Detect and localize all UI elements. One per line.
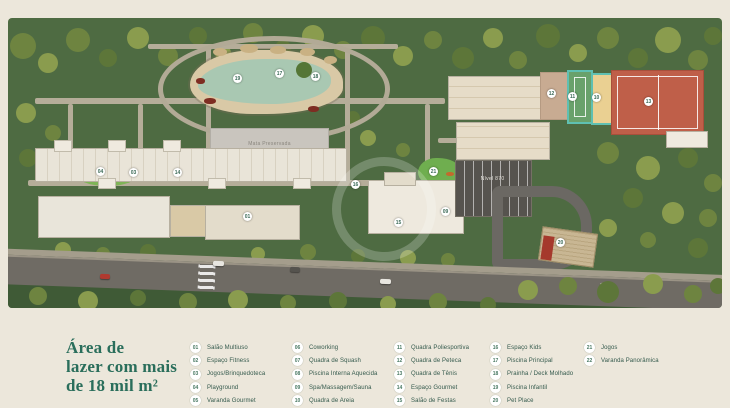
legend-item: 15Salão de Festas [394,394,490,407]
title-line: Área de [66,338,177,357]
map-marker-21: 21 [429,167,438,176]
tree [559,277,577,295]
tree [483,28,503,48]
legend-label: Piscina Interna Aquecida [309,371,377,377]
preserved-area-label: Mata Preservada [248,141,291,147]
tree [380,296,396,308]
legend-label: Quadra de Squash [309,358,361,364]
page: { "title": { "lines": ["Área de", "lazer… [0,0,730,408]
legend-label: Quadra de Tênis [411,371,457,377]
tree [127,27,149,49]
car [213,261,224,266]
map-marker-10: 10 [592,93,601,102]
tree [623,188,643,208]
tree [360,130,376,146]
legend-item: 21Jogos [584,341,714,354]
legend-number-badge: 20 [490,395,501,406]
legend-label: Varanda Gourmet [207,398,256,404]
legend-label: Espaço Fitness [207,358,249,364]
tree [280,295,296,308]
legend-number-badge: 14 [394,382,405,393]
legend-number-badge: 02 [190,355,201,366]
tree [643,274,663,294]
level-label: Nível 870 [455,176,530,182]
tree [684,285,702,303]
legend-item: 20Pet Place [490,394,584,407]
tree [45,125,61,141]
legend-number-badge: 01 [190,342,201,353]
tree [66,28,90,52]
tree [599,219,617,237]
legend-number-badge: 13 [394,369,405,380]
car [380,279,391,284]
title-line: lazer com mais [66,357,177,376]
legend-number-badge: 08 [292,369,303,380]
tree [189,27,207,45]
car [100,274,110,279]
building-wing [54,140,72,152]
tree [597,281,619,303]
tree [597,27,619,49]
map-marker-12: 12 [547,89,556,98]
legend-item: 04Playground [190,381,292,394]
tree [424,31,442,49]
tree [16,103,36,123]
legend-number-badge: 19 [490,382,501,393]
legend-label: Quadra de Peteca [411,358,461,364]
legend-label: Prainha / Deck Molhado [507,371,573,377]
legend-column: 06Coworking07Quadra de Squash08Piscina I… [292,341,394,407]
legend-label: Spa/Massagem/Sauna [309,385,372,391]
legend-item: 14Espaço Gourmet [394,381,490,394]
legend-number-badge: 10 [292,395,303,406]
tree [130,290,146,306]
legend-label: Quadra de Areia [309,398,354,404]
map-marker-17: 17 [275,69,284,78]
legend-label: Piscina Principal [507,358,553,364]
legend-label: Quadra Poliesportiva [411,345,469,351]
legend-number-badge: 15 [394,395,405,406]
legend-number-badge: 22 [584,355,595,366]
map-marker-16: 16 [351,180,360,189]
legend-label: Playground [207,385,238,391]
games-equipment [446,172,454,176]
tennis-court [611,70,704,135]
map-marker-04: 04 [96,167,105,176]
tree [480,297,496,308]
building-wing [293,178,311,189]
tree [452,47,474,69]
legend-label: Varanda Panorâmica [601,358,659,364]
legend-number-badge: 21 [584,342,595,353]
legend-number-badge: 09 [292,382,303,393]
map-marker-14: 14 [173,168,182,177]
legend-number-badge: 17 [490,355,501,366]
amenities-legend: 01Salão Multiuso02Espaço Fitness03Jogos/… [190,341,714,407]
building-wing [208,178,226,189]
legend-item: 16Espaço Kids [490,341,584,354]
map-marker-19: 19 [233,74,242,83]
legend-panel: Área de lazer com mais de 18 mil m² 01Sa… [0,308,730,408]
legend-number-badge: 16 [490,342,501,353]
tree [704,174,722,192]
legend-number-badge: 05 [190,395,201,406]
legend-item: 09Spa/Massagem/Sauna [292,381,394,394]
legend-column: 16Espaço Kids17Piscina Principal18Prainh… [490,341,584,407]
legend-item: 17Piscina Principal [490,354,584,367]
legend-item: 01Salão Multiuso [190,341,292,354]
tree [78,291,98,308]
pool-rocks [324,56,337,64]
tree [179,293,197,308]
map-marker-03: 03 [129,168,138,177]
legend-item: 06Coworking [292,341,394,354]
legend-number-badge: 18 [490,369,501,380]
legend-label: Espaço Kids [507,345,541,351]
east-building-lower [456,122,550,160]
tree [597,142,619,164]
legend-number-badge: 04 [190,382,201,393]
legend-item: 19Piscina Infantil [490,381,584,394]
tree [518,280,538,300]
tree [10,33,36,59]
car [290,267,300,272]
map-marker-18: 18 [311,72,320,81]
legend-item: 13Quadra de Tênis [394,368,490,381]
legend-item: 22Varanda Panorâmica [584,354,714,367]
legend-number-badge: 07 [292,355,303,366]
map-marker-11: 11 [568,92,577,101]
building-wing [163,140,181,152]
legend-column: 01Salão Multiuso02Espaço Fitness03Jogos/… [190,341,292,407]
legend-item: 18Prainha / Deck Molhado [490,368,584,381]
tree [300,244,316,260]
legend-item: 02Espaço Fitness [190,354,292,367]
map-marker-15: 15 [394,218,403,227]
tree [569,44,587,62]
legend-item: 11Quadra Poliesportiva [394,341,490,354]
west-deck [170,205,207,237]
title-line: de 18 mil m² [66,376,177,395]
legend-item: 12Quadra de Peteca [394,354,490,367]
tree [228,290,248,308]
tree [628,48,648,68]
map-marker-01: 01 [243,212,252,221]
legend-item: 03Jogos/Brinquedoteca [190,368,292,381]
tree [704,27,722,45]
tree [99,49,117,67]
map-marker-09: 09 [441,207,450,216]
tree [536,24,560,48]
legend-column: 21Jogos22Varanda Panorâmica [584,341,714,407]
flower-bed [196,78,205,84]
legend-column: 11Quadra Poliesportiva12Quadra de Peteca… [394,341,490,407]
tree [655,27,681,53]
building-wing [98,178,116,189]
court-deck [666,131,708,148]
tree [329,292,347,308]
tree [678,148,698,168]
tree [38,53,58,73]
tree [29,287,47,305]
legend-item: 10Quadra de Areia [292,394,394,407]
map-marker-13: 13 [644,97,653,106]
tree [699,209,717,227]
tree [636,156,660,180]
tree [662,202,684,224]
map-marker-20: 20 [556,238,565,247]
pool-rocks [240,44,258,53]
legend-item: 08Piscina Interna Aquecida [292,368,394,381]
central-lower-building [205,205,300,240]
legend-label: Salão de Festas [411,398,456,404]
legend-number-badge: 11 [394,342,405,353]
flower-bed [204,98,216,104]
logo-watermark [332,157,436,261]
legend-item: 07Quadra de Squash [292,354,394,367]
legend-label: Espaço Gourmet [411,385,457,391]
tree [509,51,527,69]
tree [393,46,413,66]
legend-label: Salão Multiuso [207,345,248,351]
legend-label: Jogos [601,345,618,351]
tree [710,278,722,294]
legend-label: Jogos/Brinquedoteca [207,371,265,377]
masterplan-map: Mata Preservada Nível 870 19171812111013… [8,18,722,308]
legend-item: 05Varanda Gourmet [190,394,292,407]
legend-label: Coworking [309,345,338,351]
legend-number-badge: 03 [190,369,201,380]
pool-rocks [300,48,315,56]
tree [688,238,708,258]
tree [429,293,447,308]
pool-palm-tree [296,62,312,78]
pool-rocks [213,48,227,56]
legend-number-badge: 12 [394,355,405,366]
pool-rocks [270,46,286,54]
legend-label: Piscina Infantil [507,385,547,391]
tree [396,143,410,157]
tennis-net-line [658,75,659,130]
legend-number-badge: 06 [292,342,303,353]
tree [688,50,708,70]
page-title: Área de lazer com mais de 18 mil m² [66,338,177,395]
tree [640,232,656,248]
residential-row-building [35,148,347,182]
east-building-upper [448,76,546,120]
building-wing [108,140,126,152]
legend-label: Pet Place [507,398,534,404]
flower-bed [308,106,319,112]
west-building [38,196,170,238]
